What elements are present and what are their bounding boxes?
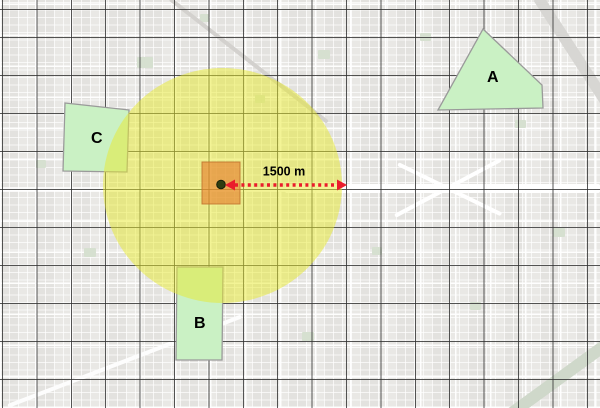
zone-b-label: B — [194, 316, 206, 332]
zone-c-label: C — [91, 131, 103, 147]
zone-a-label: A — [487, 70, 499, 86]
arrowhead-right-icon — [337, 180, 347, 191]
center-point-dot — [217, 180, 226, 189]
map-canvas: A B C 1500 m — [0, 0, 600, 408]
annotation-layer — [0, 0, 600, 408]
distance-label: 1500 m — [263, 165, 305, 179]
